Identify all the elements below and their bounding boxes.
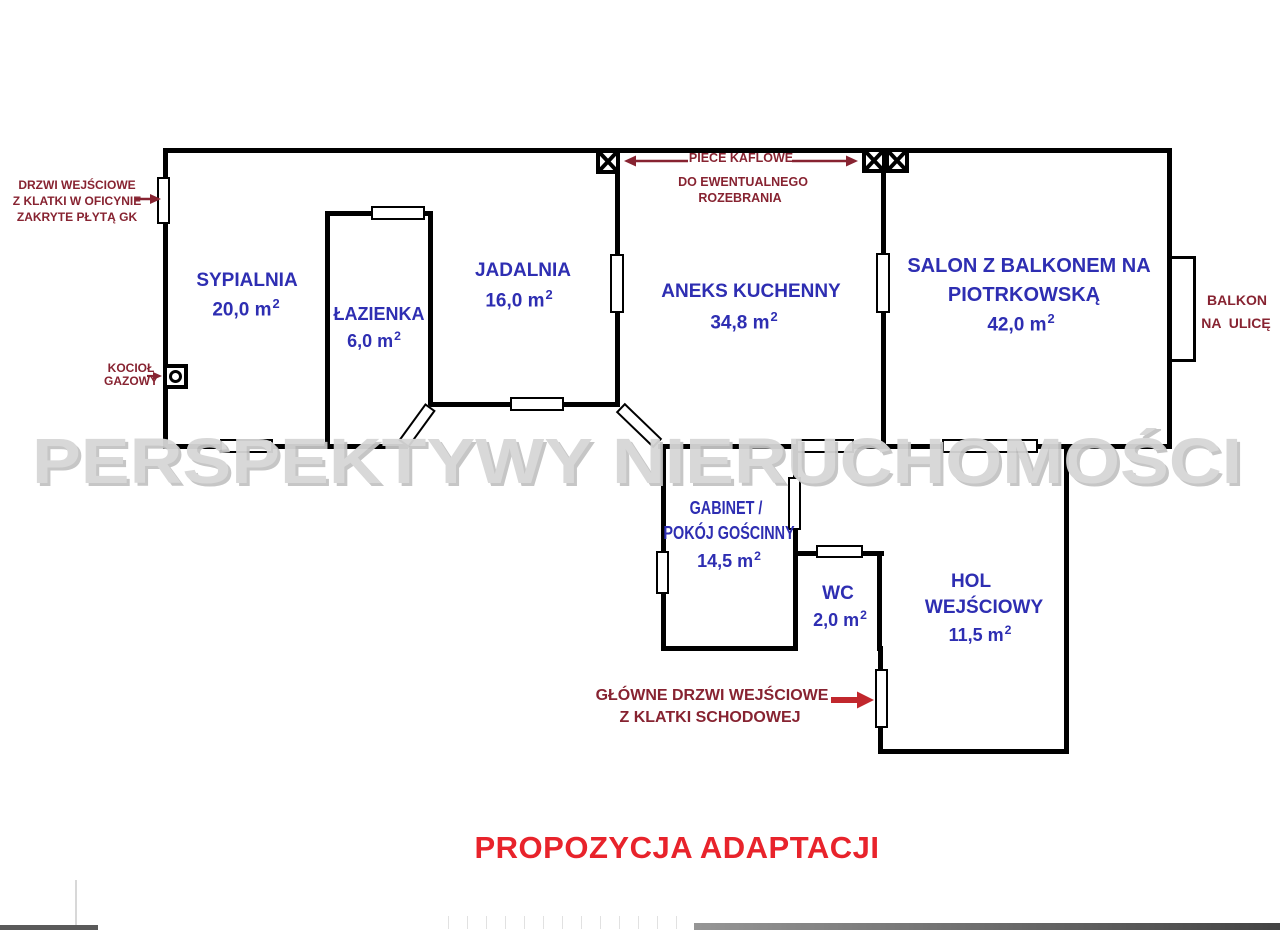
- window-wc: [816, 545, 863, 558]
- gabinet-label-line2: POKÓJ GOŚCINNY: [663, 524, 794, 542]
- area-exponent: 2: [1047, 311, 1054, 326]
- door-jadalnia-aneks: [610, 254, 624, 313]
- scan-tick-marks: [430, 916, 692, 929]
- jadalnia-label: JADALNIA: [475, 261, 571, 280]
- area-exponent: 2: [860, 608, 867, 622]
- area-exponent: 2: [1005, 623, 1012, 637]
- salon-label-line2: PIOTRKOWSKĄ: [948, 285, 1100, 305]
- entry-door-note-line2: Z KLATKI W OFICYNIE: [13, 195, 141, 207]
- hol-label-line2: WEJŚCIOWY: [925, 598, 1043, 617]
- door-entry-oficyna: [157, 177, 170, 224]
- hol-area: 11,5 m2: [949, 624, 1012, 644]
- salon-area: 42,0 m2: [987, 313, 1054, 334]
- scan-line-left: [75, 880, 77, 925]
- lazienka-label: ŁAZIENKA: [334, 305, 425, 323]
- wall-wc-left: [793, 444, 798, 651]
- balcony-note-line1: BALKON: [1207, 293, 1267, 307]
- area-value: 42,0 m: [987, 314, 1046, 335]
- main-door-note-line1: GŁÓWNE DRZWI WEJŚCIOWE: [596, 688, 829, 704]
- x-cross-icon: [866, 152, 882, 169]
- area-exponent: 2: [754, 549, 761, 563]
- hol-label-line1: HOL: [951, 572, 991, 591]
- wall-gabinet-left: [661, 444, 666, 651]
- boiler-note-line2: GAZOWY: [104, 375, 158, 387]
- boiler-note-line1: KOCIOŁ: [108, 362, 155, 374]
- x-cross-icon: [889, 152, 905, 169]
- window-sypialnia: [220, 439, 273, 453]
- page-title: PROPOZYCJA ADAPTACJI: [474, 830, 879, 866]
- boiler-burner-icon: [169, 370, 182, 383]
- wall-wc-right: [877, 551, 882, 651]
- wall-bottom-right: [658, 444, 1172, 449]
- door-main-entrance: [875, 669, 888, 728]
- area-value: 34,8 m: [710, 312, 769, 333]
- area-exponent: 2: [770, 309, 777, 324]
- floor-plan: SYPIALNIA 20,0 m2 ŁAZIENKA 6,0 m2 JADALN…: [0, 0, 1280, 930]
- wc-label: WC: [822, 584, 854, 603]
- balcony-right: [1193, 256, 1196, 362]
- wc-area: 2,0 m2: [813, 609, 867, 629]
- window-gabinet: [656, 551, 669, 594]
- area-exponent: 2: [272, 296, 279, 311]
- stoves-note-line1: PIECE KAFLOWE: [689, 152, 793, 165]
- wall-gabinet-bottom: [661, 646, 798, 651]
- area-value: 20,0 m: [212, 299, 271, 320]
- watermark-text: PERSPEKTYWY NIERUCHOMOŚCI: [32, 428, 1242, 497]
- main-door-note-line2: Z KLATKI SCHODOWEJ: [619, 710, 800, 726]
- scan-edge-left: [0, 925, 98, 930]
- tile-stove-icon: [885, 148, 909, 173]
- door-salon-hol: [942, 439, 1038, 453]
- scan-edge-right: [694, 923, 1280, 930]
- aneks-area: 34,8 m2: [710, 311, 777, 332]
- door-aneks-salon: [876, 253, 890, 313]
- sypialnia-area: 20,0 m2: [212, 298, 279, 319]
- door-swing-left: [398, 403, 436, 448]
- sypialnia-label: SYPIALNIA: [196, 271, 297, 290]
- tile-stove-icon: [862, 148, 886, 173]
- area-exponent: 2: [394, 329, 401, 343]
- area-value: 6,0 m: [347, 331, 393, 351]
- wall-bottom-left: [163, 444, 408, 449]
- aneks-label: ANEKS KUCHENNY: [661, 282, 840, 301]
- wall-exterior-right: [1167, 148, 1172, 449]
- door-swing-right: [616, 403, 662, 448]
- gas-boiler-icon: [163, 364, 188, 389]
- wall-bath-right: [428, 211, 433, 407]
- area-value: 16,0 m: [485, 290, 544, 311]
- wall-hol-right: [1064, 444, 1069, 754]
- area-exponent: 2: [545, 287, 552, 302]
- gabinet-area: 14,5 m2: [697, 550, 761, 570]
- lazienka-area: 6,0 m2: [347, 330, 401, 350]
- wall-exterior-top: [163, 148, 1172, 153]
- door-aneks-hol: [796, 439, 854, 453]
- gabinet-label-line1: GABINET /: [690, 499, 763, 517]
- door-lazienka: [371, 206, 425, 220]
- area-value: 2,0 m: [813, 610, 859, 630]
- stoves-note-line3: ROZEBRANIA: [698, 192, 781, 205]
- window-jadalnia: [510, 397, 564, 411]
- salon-label-line1: SALON Z BALKONEM NA: [907, 256, 1150, 276]
- stoves-note-line2: DO EWENTUALNEGO: [678, 176, 808, 189]
- x-cross-icon: [600, 153, 616, 170]
- tile-stove-icon: [596, 149, 620, 174]
- wall-bath-left: [325, 211, 330, 449]
- arrows-overlay: [0, 0, 1280, 930]
- jadalnia-area: 16,0 m2: [485, 289, 552, 310]
- balcony-bottom: [1172, 359, 1196, 362]
- entry-door-note-line1: DRZWI WEJŚCIOWE: [18, 179, 135, 191]
- area-value: 11,5 m: [949, 625, 1004, 645]
- area-value: 14,5 m: [697, 551, 753, 571]
- main-entrance-arrow-icon: [831, 692, 874, 709]
- entry-door-note-line3: ZAKRYTE PŁYTĄ GK: [17, 211, 137, 223]
- wall-hol-bottom: [878, 749, 1069, 754]
- balcony-note-line2: NA ULICĘ: [1201, 316, 1270, 330]
